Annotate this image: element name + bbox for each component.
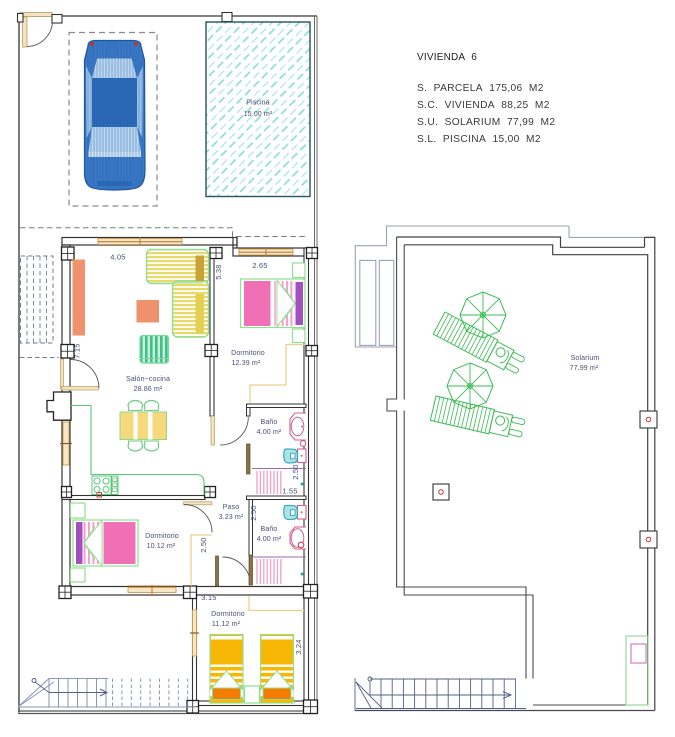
svg-text:2.50: 2.50 [249,505,258,520]
svg-text:2.50: 2.50 [199,537,208,552]
svg-text:Dormitorio: Dormitorio [211,610,245,618]
svg-text:77.99 m²: 77.99 m² [570,364,599,372]
svg-text:15.00 m²: 15.00 m² [244,110,273,118]
svg-text:28.86 m²: 28.86 m² [134,385,163,393]
svg-text:S.U. SOLARIUM 77,99 M2: S.U. SOLARIUM 77,99 M2 [417,117,555,128]
svg-text:Dormitorio: Dormitorio [231,349,265,357]
svg-text:3.15: 3.15 [201,593,216,602]
svg-text:Piscina: Piscina [246,99,270,107]
svg-text:5.38: 5.38 [214,264,223,279]
svg-text:2.50: 2.50 [291,464,300,479]
svg-text:S.L. PISCINA 15,00 M2: S.L. PISCINA 15,00 M2 [417,134,541,145]
svg-text:S. PARCELA 175,06 M2: S. PARCELA 175,06 M2 [417,83,544,94]
svg-text:4.00 m²: 4.00 m² [257,535,282,543]
svg-text:10.12 m²: 10.12 m² [147,542,176,550]
svg-text:4.05: 4.05 [110,253,125,262]
svg-text:12.39 m²: 12.39 m² [232,359,261,367]
svg-text:Salón−cocina: Salón−cocina [126,375,170,383]
svg-text:VIVIENDA 6: VIVIENDA 6 [417,52,477,63]
svg-text:Baño: Baño [261,525,278,533]
svg-text:Dormitorio: Dormitorio [145,532,179,540]
svg-text:S.C. VIVIENDA 88,25 M2: S.C. VIVIENDA 88,25 M2 [417,100,550,111]
svg-text:Solarium: Solarium [571,354,600,362]
svg-text:1.55: 1.55 [282,487,297,496]
svg-text:Baño: Baño [261,418,278,426]
svg-text:4.00 m²: 4.00 m² [257,428,282,436]
svg-text:7.15: 7.15 [73,343,82,358]
svg-text:2.65: 2.65 [252,261,267,270]
svg-text:3.23 m²: 3.23 m² [219,513,244,521]
svg-text:Paso: Paso [223,503,240,511]
svg-text:11.12 m²: 11.12 m² [212,620,241,628]
svg-text:3.24: 3.24 [294,639,303,654]
